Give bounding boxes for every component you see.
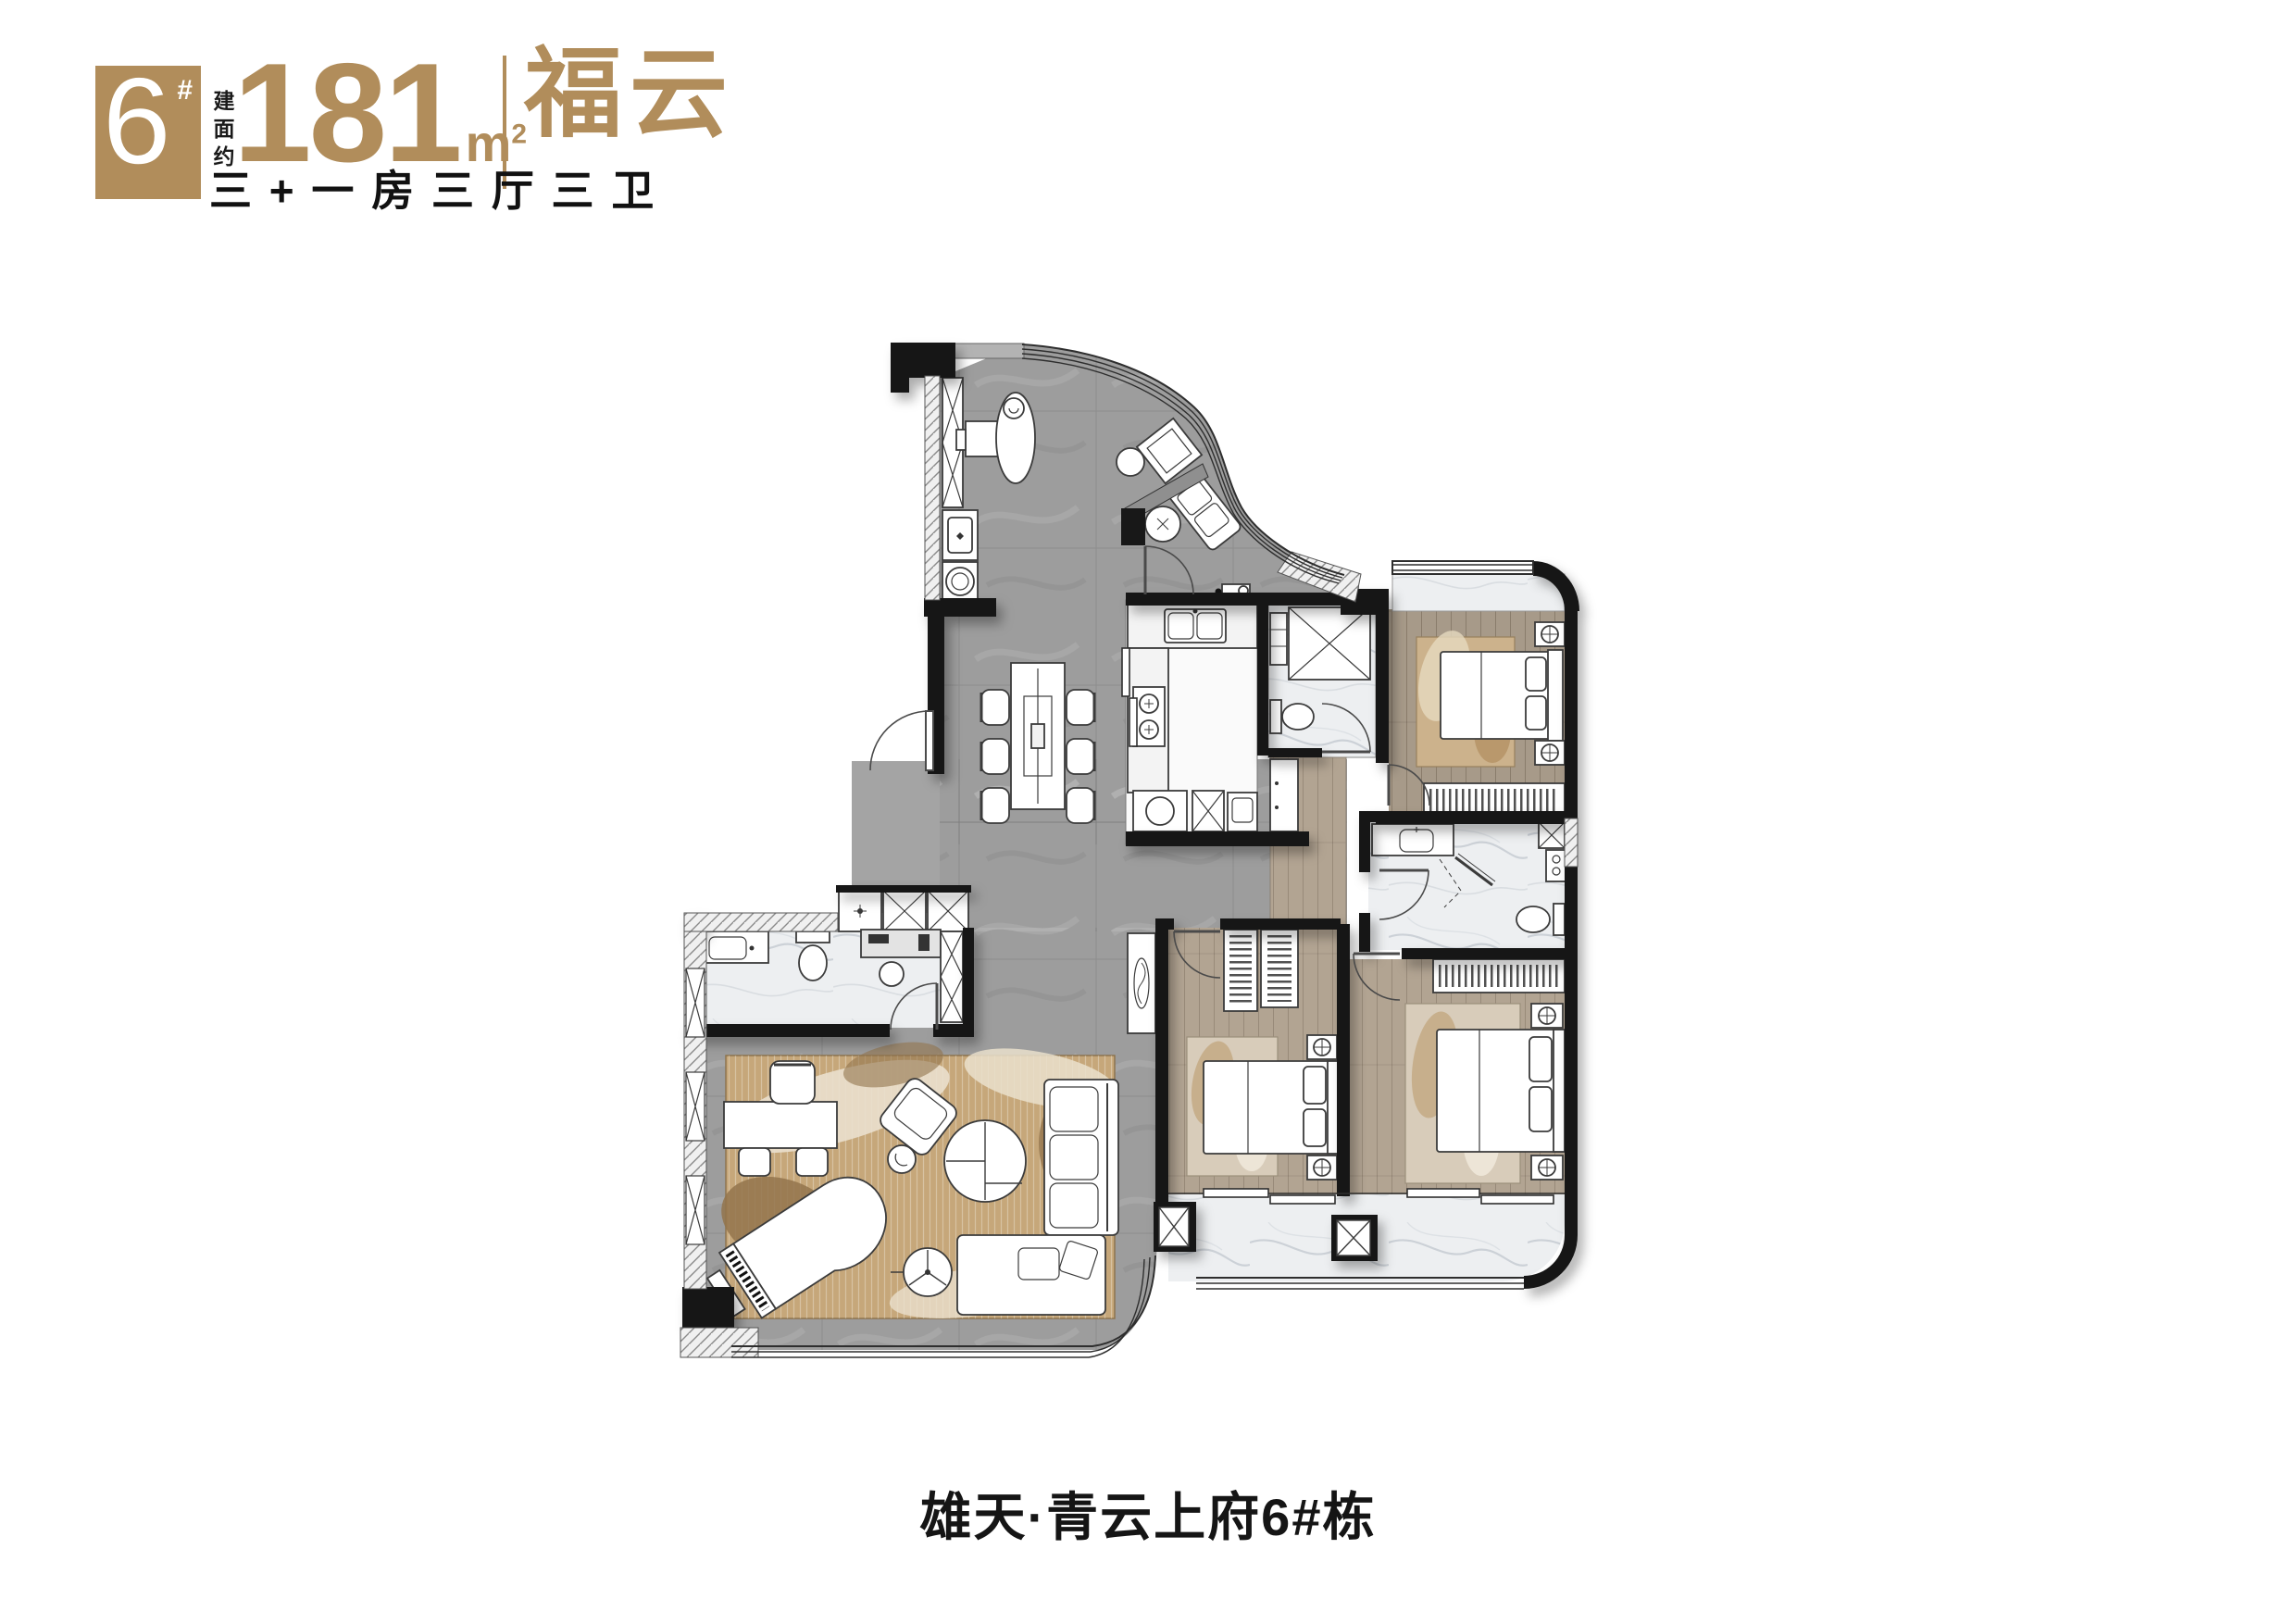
kitchen-sink — [1165, 609, 1226, 643]
layout-tagline: 三 + 一 房 三 厅 三 卫 — [209, 157, 656, 219]
bedroom1-bay-sill — [1392, 574, 1565, 611]
right-exterior-wall — [1565, 606, 1578, 1235]
floor-plan-svg — [648, 306, 1685, 1398]
coffee-table — [944, 1120, 1026, 1202]
left-wall-x-columns — [686, 968, 705, 1244]
entry-porch-sill — [952, 344, 1024, 358]
floor-plan — [648, 306, 1685, 1398]
hall-closet-row — [839, 891, 968, 931]
master-furniture — [1433, 959, 1565, 1180]
hall-console — [1128, 933, 1155, 1033]
bedroom1-bay-window — [1392, 561, 1533, 574]
kitchen-tall-cabinet — [1270, 759, 1298, 831]
entry-basin-cabinet — [942, 510, 978, 560]
floorplan-poster: 6 # 建面约 181 m2 福云 三 + 一 房 三 厅 三 卫 — [0, 0, 2296, 1624]
sofa — [1044, 1080, 1118, 1235]
entry-console-oval — [996, 393, 1035, 483]
brand-logo: 福云 — [524, 37, 735, 152]
project-title: 雄天·青云上府6#栋 — [0, 1476, 2296, 1551]
master-wardrobe — [1433, 959, 1565, 993]
block-number: 6 — [103, 55, 170, 188]
bath3-storage-column — [941, 931, 963, 1022]
bath2-niche — [1546, 850, 1566, 881]
bath2-toilet — [1516, 904, 1565, 935]
kitchen-laundry-row — [1133, 791, 1257, 831]
block-hash-mark: # — [177, 75, 193, 106]
block-number-badge: 6 # — [95, 66, 201, 199]
bedroom1-furniture — [1424, 622, 1565, 817]
bedroom2-wardrobes — [1224, 930, 1298, 1011]
bath2-vanity — [1372, 824, 1454, 856]
bedroom2-left-wall — [1155, 918, 1168, 1207]
entry-washing-machine — [942, 562, 978, 601]
master-top-wall — [1402, 948, 1578, 959]
kitchen-top-wall — [1126, 593, 1366, 606]
side-table — [888, 1145, 916, 1173]
bath3-toilet — [796, 931, 830, 981]
bath2-top-wall — [1359, 811, 1578, 822]
desk-chair — [770, 1061, 815, 1104]
chaise — [957, 1235, 1105, 1315]
master-left-wall — [1337, 924, 1350, 1196]
bath1-shelf — [1270, 613, 1287, 665]
desk — [724, 1102, 837, 1148]
kitchen-stove — [1133, 687, 1165, 746]
